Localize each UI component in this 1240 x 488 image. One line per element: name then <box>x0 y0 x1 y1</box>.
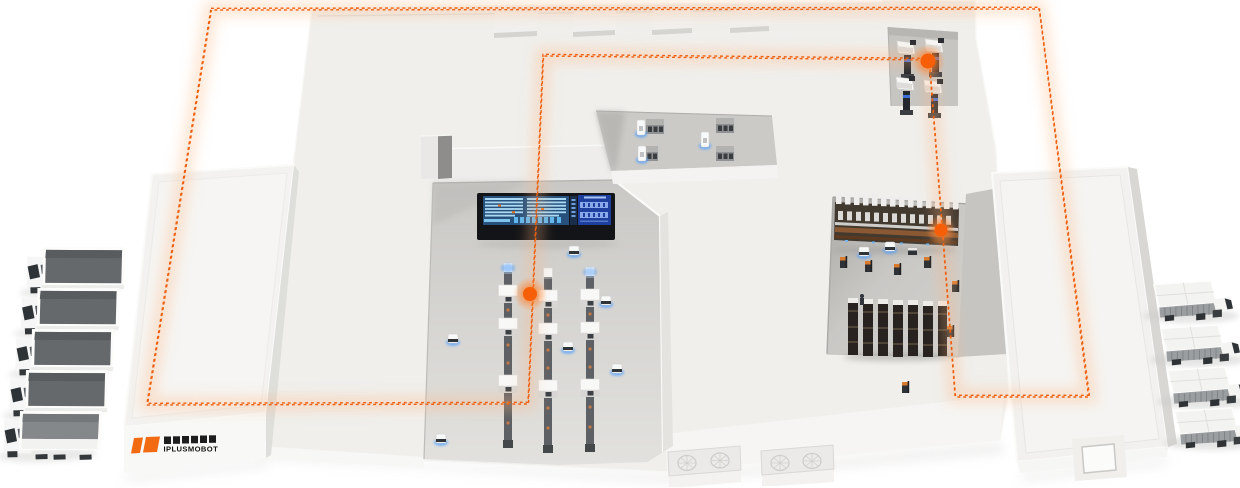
svg-text:IPLUSMOBOT: IPLUSMOBOT <box>164 445 219 454</box>
